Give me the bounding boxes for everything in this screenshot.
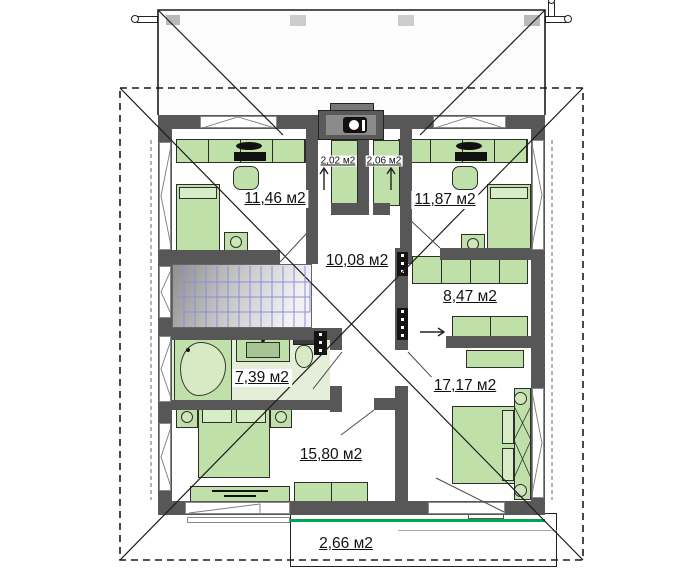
roof-vent-square bbox=[166, 15, 180, 25]
room-area-label-bedroom-top-right: 11,87 м2 bbox=[411, 191, 478, 209]
desk-lamp bbox=[456, 142, 482, 150]
room-area-label-walk-in-closet: 8,47 м2 bbox=[440, 288, 500, 306]
window bbox=[159, 336, 171, 402]
pillow bbox=[502, 410, 514, 444]
wall-segment bbox=[395, 386, 408, 502]
wardrobe bbox=[514, 388, 531, 500]
roof-vent-square bbox=[398, 15, 414, 26]
vent-block bbox=[397, 308, 408, 340]
window bbox=[200, 116, 277, 128]
wardrobe-knob bbox=[514, 484, 527, 497]
upper-roof-plane bbox=[158, 10, 545, 115]
chimney-pipe-cap bbox=[564, 15, 572, 23]
dresser bbox=[190, 486, 290, 502]
roof-vent-pipe-cap bbox=[131, 15, 139, 23]
chimney-duct-slot bbox=[362, 120, 365, 131]
window bbox=[159, 142, 171, 250]
wall-segment bbox=[440, 248, 545, 260]
balcony-door-opening bbox=[428, 502, 505, 514]
wall-segment bbox=[158, 250, 280, 264]
closet-shelving bbox=[373, 140, 400, 206]
pillow bbox=[179, 187, 217, 199]
nightstand-lamp bbox=[181, 411, 193, 423]
nightstand-lamp bbox=[275, 411, 287, 423]
pillow bbox=[502, 448, 514, 481]
window bbox=[433, 116, 506, 128]
pillow bbox=[202, 409, 232, 423]
vent-block bbox=[314, 331, 327, 355]
closet-shelving bbox=[412, 256, 528, 284]
window-sill-exterior bbox=[187, 517, 290, 523]
room-area-label-bedroom-right: 17,17 м2 bbox=[431, 377, 499, 395]
wall-segment bbox=[373, 203, 390, 215]
wall-segment bbox=[330, 328, 342, 350]
room-area-label-balcony: 2,66 м2 bbox=[316, 535, 376, 553]
wardrobe-knob bbox=[514, 392, 527, 405]
room-area-label-bedroom-top-left: 11,46 м2 bbox=[241, 190, 308, 208]
toilet-bowl bbox=[295, 345, 313, 368]
pillow bbox=[490, 187, 528, 199]
sink bbox=[246, 342, 280, 358]
desk-lamp bbox=[236, 142, 262, 150]
dresser-handle bbox=[212, 490, 268, 492]
wardrobe bbox=[294, 482, 368, 502]
balcony-glazing-line bbox=[290, 519, 545, 522]
stairs bbox=[172, 264, 312, 328]
wall-segment bbox=[332, 398, 340, 410]
dresser-handle bbox=[224, 495, 256, 497]
window bbox=[532, 388, 544, 498]
window bbox=[185, 502, 290, 514]
balcony-floor-line bbox=[398, 530, 557, 531]
wall-segment bbox=[374, 398, 395, 410]
vent-block bbox=[397, 252, 408, 276]
pillow bbox=[236, 409, 266, 423]
room-area-label-closet-left: 2,02 м2 bbox=[320, 156, 357, 167]
closet-shelving bbox=[331, 140, 358, 206]
room-area-label-hall: 10,08 м2 bbox=[323, 252, 391, 270]
wall-segment bbox=[158, 400, 332, 410]
desk-chair bbox=[452, 166, 478, 190]
roof-vent-square bbox=[290, 15, 306, 26]
wall-segment bbox=[400, 129, 412, 264]
floor-plan-drawing: 11,46 м2 11,87 м2 2,02 м2 2,06 м2 10,08 … bbox=[0, 0, 700, 575]
desk-monitor bbox=[234, 152, 266, 161]
window bbox=[532, 140, 544, 250]
wall-segment bbox=[446, 336, 545, 348]
roof-vent-square bbox=[524, 15, 540, 26]
wall-segment bbox=[358, 129, 369, 215]
chimney-duct-circle bbox=[349, 120, 359, 130]
nightstand-lamp bbox=[230, 236, 242, 248]
roof-vent-pipe bbox=[137, 16, 158, 23]
window bbox=[159, 266, 171, 318]
wall-segment bbox=[331, 203, 358, 215]
bathtub-drain bbox=[186, 348, 190, 352]
desk-chair bbox=[233, 166, 259, 190]
room-area-label-closet-right: 2,06 м2 bbox=[366, 156, 403, 167]
chimney-pipe-vertical bbox=[548, 2, 555, 17]
dresser bbox=[466, 350, 524, 368]
closet-shelving bbox=[452, 316, 528, 338]
room-area-label-bathroom: 7,39 м2 bbox=[232, 369, 292, 387]
window bbox=[159, 423, 171, 491]
room-area-label-bedroom-left: 15,80 м2 bbox=[297, 446, 365, 464]
desk-monitor bbox=[455, 152, 487, 161]
